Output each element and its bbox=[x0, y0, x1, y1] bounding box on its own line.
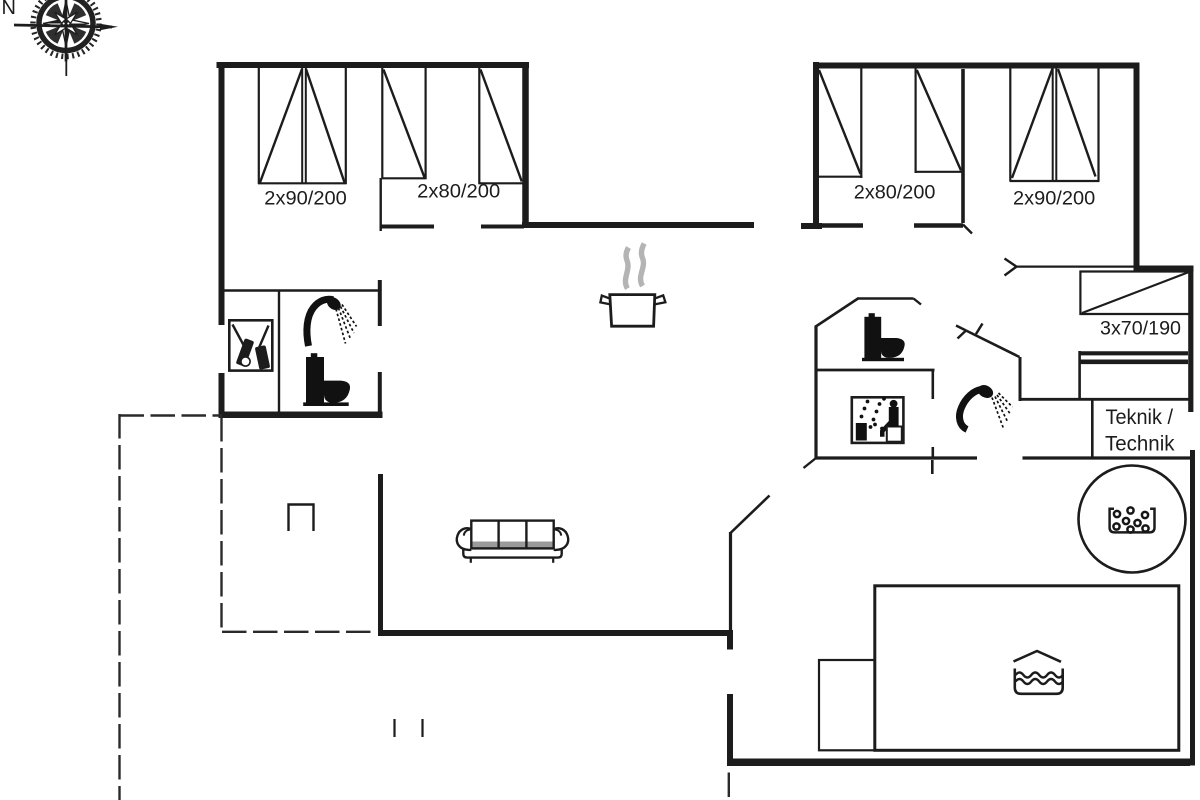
svg-text:2x90/200: 2x90/200 bbox=[264, 187, 347, 209]
svg-text:2x90/200: 2x90/200 bbox=[1013, 188, 1095, 210]
svg-text:Teknik /: Teknik / bbox=[1106, 406, 1174, 429]
svg-text:2x80/200: 2x80/200 bbox=[417, 181, 500, 203]
svg-text:3x70/190: 3x70/190 bbox=[1100, 318, 1181, 340]
svg-text:2x80/200: 2x80/200 bbox=[854, 182, 936, 204]
svg-text:Technik: Technik bbox=[1105, 433, 1175, 456]
svg-text:N: N bbox=[2, 0, 16, 19]
